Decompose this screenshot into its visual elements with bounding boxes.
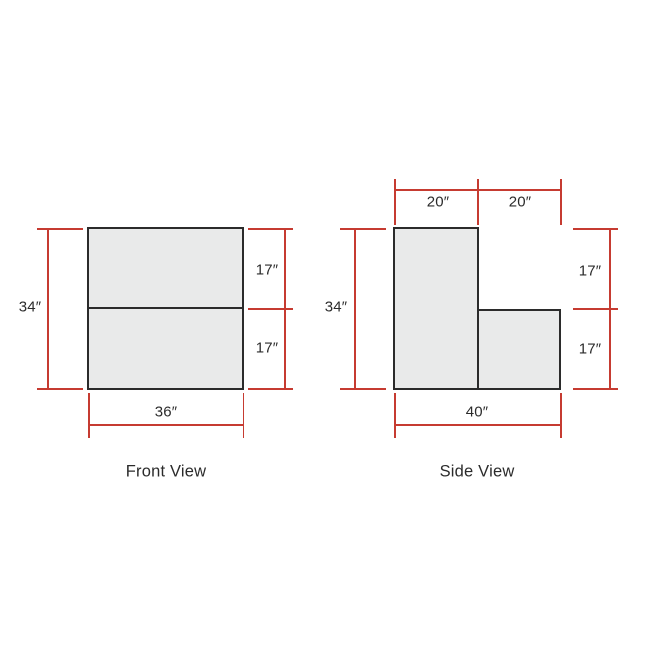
front-width-dimension-line bbox=[88, 424, 244, 426]
side-sections-middle-tick bbox=[573, 308, 618, 310]
side-height-label: 34″ bbox=[325, 299, 348, 316]
front-view-divider-line bbox=[87, 307, 244, 309]
front-width-left-tick bbox=[88, 393, 90, 438]
side-view-title: Side View bbox=[440, 463, 515, 482]
side-view-tall-rectangle bbox=[393, 227, 479, 390]
side-depth-label: 40″ bbox=[466, 404, 489, 421]
side-top-left-segment-label: 20″ bbox=[427, 194, 450, 211]
front-sections-top-tick bbox=[248, 228, 293, 230]
side-depth-dimension-line bbox=[394, 424, 561, 426]
front-upper-section-label: 17″ bbox=[256, 262, 279, 279]
side-depth-right-tick bbox=[560, 393, 562, 438]
side-upper-section-label: 17″ bbox=[579, 263, 602, 280]
dimension-diagram: 34″ 17″ 17″ 36″ Front View 20″ 20″ 34″ bbox=[0, 0, 650, 650]
side-top-right-segment-label: 20″ bbox=[509, 194, 532, 211]
front-sections-middle-tick bbox=[248, 308, 293, 310]
front-height-bottom-tick bbox=[37, 388, 83, 390]
front-height-label: 34″ bbox=[19, 299, 42, 316]
side-sections-bottom-tick bbox=[573, 388, 618, 390]
side-height-top-tick bbox=[340, 228, 386, 230]
front-width-label: 36″ bbox=[155, 404, 178, 421]
front-width-right-tick bbox=[243, 393, 245, 438]
front-height-dimension-line bbox=[47, 228, 49, 389]
side-sections-top-tick bbox=[573, 228, 618, 230]
side-top-left-tick bbox=[394, 179, 396, 225]
front-view-title: Front View bbox=[126, 463, 207, 482]
front-sections-bottom-tick bbox=[248, 388, 293, 390]
side-lower-section-label: 17″ bbox=[579, 341, 602, 358]
side-depth-left-tick bbox=[394, 393, 396, 438]
side-top-middle-tick bbox=[477, 179, 479, 225]
side-top-right-tick bbox=[560, 179, 562, 225]
front-height-top-tick bbox=[37, 228, 83, 230]
side-height-dimension-line bbox=[354, 228, 356, 389]
side-view-lower-rectangle bbox=[477, 309, 561, 390]
side-height-bottom-tick bbox=[340, 388, 386, 390]
front-lower-section-label: 17″ bbox=[256, 340, 279, 357]
